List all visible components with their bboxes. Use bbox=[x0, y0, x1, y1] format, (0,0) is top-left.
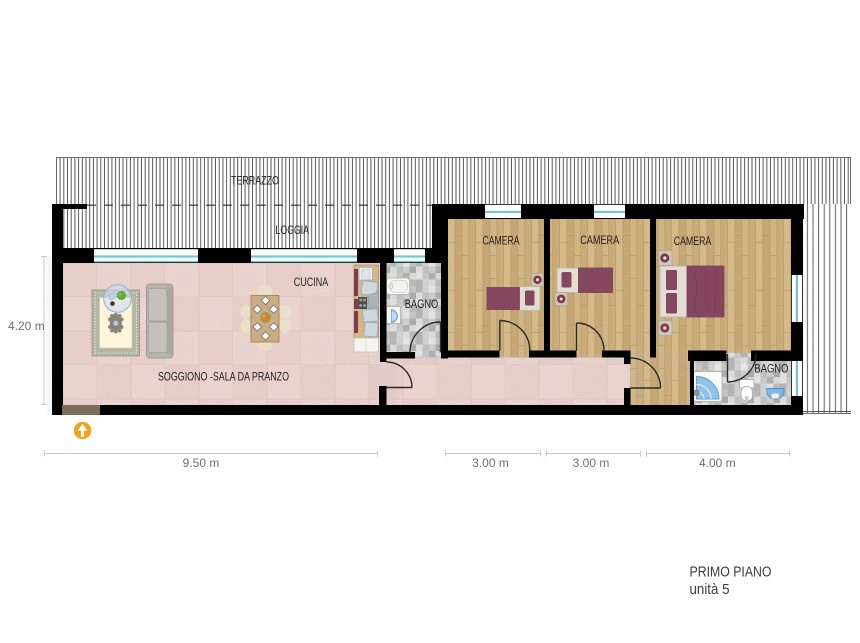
svg-text:PRIMO PIANO: PRIMO PIANO bbox=[690, 564, 772, 581]
svg-text:CAMERA: CAMERA bbox=[580, 235, 619, 247]
svg-text:3.00 m: 3.00 m bbox=[573, 456, 610, 470]
svg-text:CUCINA: CUCINA bbox=[294, 277, 329, 289]
svg-text:TERRAZZO: TERRAZZO bbox=[231, 176, 279, 188]
svg-text:9.50 m: 9.50 m bbox=[183, 456, 220, 470]
svg-text:BAGNO: BAGNO bbox=[405, 299, 439, 311]
svg-text:CAMERA: CAMERA bbox=[674, 236, 712, 248]
svg-text:unità 5: unità 5 bbox=[690, 581, 730, 598]
svg-text:3.00 m: 3.00 m bbox=[472, 456, 509, 470]
svg-text:LOGGIA: LOGGIA bbox=[276, 225, 310, 237]
svg-text:4.20 m: 4.20 m bbox=[8, 319, 45, 333]
svg-text:CAMERA: CAMERA bbox=[483, 235, 520, 247]
svg-text:SOGGIONO -SALA DA PRANZO: SOGGIONO -SALA DA PRANZO bbox=[158, 372, 289, 384]
svg-text:BAGNO: BAGNO bbox=[754, 364, 788, 376]
svg-text:4.00 m: 4.00 m bbox=[699, 456, 736, 470]
